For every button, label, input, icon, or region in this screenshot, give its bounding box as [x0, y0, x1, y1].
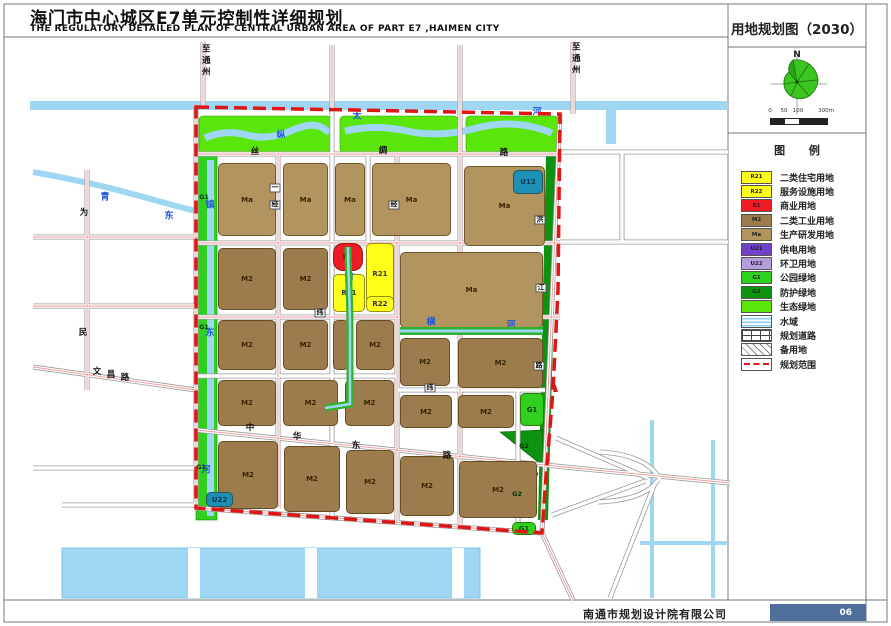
- road-name-label: 路: [500, 149, 509, 158]
- legend-item: B1商业用地: [741, 199, 863, 213]
- river-name-label: 横: [426, 319, 435, 328]
- road-name-label: 至通州: [571, 42, 580, 77]
- legend-swatch: G2: [741, 286, 772, 299]
- legend-swatch: M2: [741, 214, 772, 227]
- legend-swatch: [741, 343, 772, 356]
- page-number-box: 06: [770, 604, 866, 621]
- road-name-label: 绸: [379, 147, 388, 156]
- green-code-label: G2: [519, 443, 529, 450]
- scale-tick: 300m: [818, 108, 834, 114]
- road-name-label: 江: [536, 284, 547, 293]
- road-name-label: 纬: [315, 309, 326, 318]
- river-name-label: 东: [164, 213, 173, 222]
- road-name-label: 为: [80, 209, 89, 218]
- legend-item: 备用地: [741, 343, 863, 357]
- scale-segment: [785, 119, 799, 124]
- river-name-label: 东: [205, 330, 214, 339]
- legend-label: 水域: [780, 315, 798, 328]
- legend: R21二类住宅用地R22服务设施用地B1商业用地M2二类工业用地Ma生产研发用地…: [741, 170, 863, 371]
- road-name-label: 经: [270, 201, 281, 210]
- scale-segment: [771, 119, 785, 124]
- legend-label: 生态绿地: [780, 300, 816, 313]
- legend-item: G1公园绿地: [741, 271, 863, 285]
- legend-label: 防护绿地: [780, 286, 816, 299]
- road-name-label: 东: [352, 442, 361, 451]
- scale-tick: 100: [793, 108, 804, 114]
- legend-label: 规划范围: [780, 358, 816, 371]
- plan-sheet: MaMaMaMaMaU12M2M2MaB1R21R21R22M2M2M2M2M2…: [0, 0, 891, 626]
- road-name-label: 路: [121, 374, 130, 383]
- river-name-label: 青: [100, 194, 109, 203]
- road-name-label: 丝: [251, 148, 260, 157]
- river-name-label: 河: [344, 275, 353, 284]
- green-code-label: G1: [196, 464, 206, 471]
- legend-label: 供电用地: [780, 243, 816, 256]
- legend-label: 公园绿地: [780, 271, 816, 284]
- north-label: N: [789, 50, 805, 60]
- legend-item: M2二类工业用地: [741, 213, 863, 227]
- scale-tick: 0: [768, 108, 772, 114]
- legend-swatch: [741, 358, 772, 371]
- legend-swatch: R22: [741, 185, 772, 198]
- river-name-label: 河: [506, 322, 515, 331]
- legend-item: 规划道路: [741, 328, 863, 342]
- river-name-label: 太: [352, 113, 361, 122]
- legend-item: 水域: [741, 314, 863, 328]
- road-name-label: 昌: [107, 371, 116, 380]
- road-name-label: 至通州: [201, 44, 210, 79]
- road-name-label: 文: [93, 368, 102, 377]
- map-sheet-title: 用地规划图（2030）: [728, 18, 866, 38]
- legend-swatch: R21: [741, 171, 772, 184]
- green-code-label: G1: [199, 324, 209, 331]
- legend-swatch: [741, 315, 772, 328]
- scale-tick: 50: [781, 108, 788, 114]
- legend-label: 服务设施用地: [780, 185, 834, 198]
- page-subtitle: THE REGULATORY DETAILED PLAN OF CENTRAL …: [30, 24, 500, 34]
- legend-swatch: U21: [741, 243, 772, 256]
- legend-swatch: G1: [741, 271, 772, 284]
- green-code-label: G1: [199, 194, 209, 201]
- road-name-label: 路: [534, 362, 545, 371]
- legend-item: U22环卫用地: [741, 256, 863, 270]
- legend-item: G2防护绿地: [741, 285, 863, 299]
- legend-item: U21供电用地: [741, 242, 863, 256]
- river-name-label: 纵: [276, 132, 285, 141]
- legend-label: 备用地: [780, 343, 807, 356]
- legend-item: R21二类住宅用地: [741, 170, 863, 184]
- legend-swatch: U22: [741, 257, 772, 270]
- legend-label: 环卫用地: [780, 257, 816, 270]
- legend-label: 生产研发用地: [780, 228, 834, 241]
- scale-bar: [770, 118, 828, 125]
- legend-item: R22服务设施用地: [741, 184, 863, 198]
- road-name-label: 一: [270, 184, 281, 193]
- road-name-label: 华: [293, 433, 302, 442]
- road-name-label: 纬: [425, 384, 436, 393]
- road-name-label: 洪: [535, 216, 546, 225]
- legend-swatch: B1: [741, 199, 772, 212]
- road-name-label: 经: [389, 201, 400, 210]
- scale-segment: [799, 119, 827, 124]
- legend-label: 二类住宅用地: [780, 171, 834, 184]
- legend-item: 生态绿地: [741, 300, 863, 314]
- legend-label: 二类工业用地: [780, 214, 834, 227]
- legend-item: 规划范围: [741, 357, 863, 371]
- road-name-label: 中: [246, 424, 255, 433]
- river-name-label: 河: [532, 109, 541, 118]
- green-code-label: G2: [512, 491, 522, 498]
- road-name-label: 路: [443, 452, 452, 461]
- design-institute-name: 南通市规划设计院有限公司: [560, 606, 750, 622]
- legend-swatch: [741, 329, 772, 342]
- road-name-label: 民: [79, 329, 88, 338]
- legend-title: 图 例: [728, 142, 866, 158]
- page-number: 06: [839, 608, 852, 618]
- legend-label: 规划道路: [780, 329, 816, 342]
- legend-label: 商业用地: [780, 199, 816, 212]
- legend-item: Ma生产研发用地: [741, 228, 863, 242]
- legend-swatch: Ma: [741, 228, 772, 241]
- river-name-label: 镇: [205, 202, 214, 211]
- legend-swatch: [741, 300, 772, 313]
